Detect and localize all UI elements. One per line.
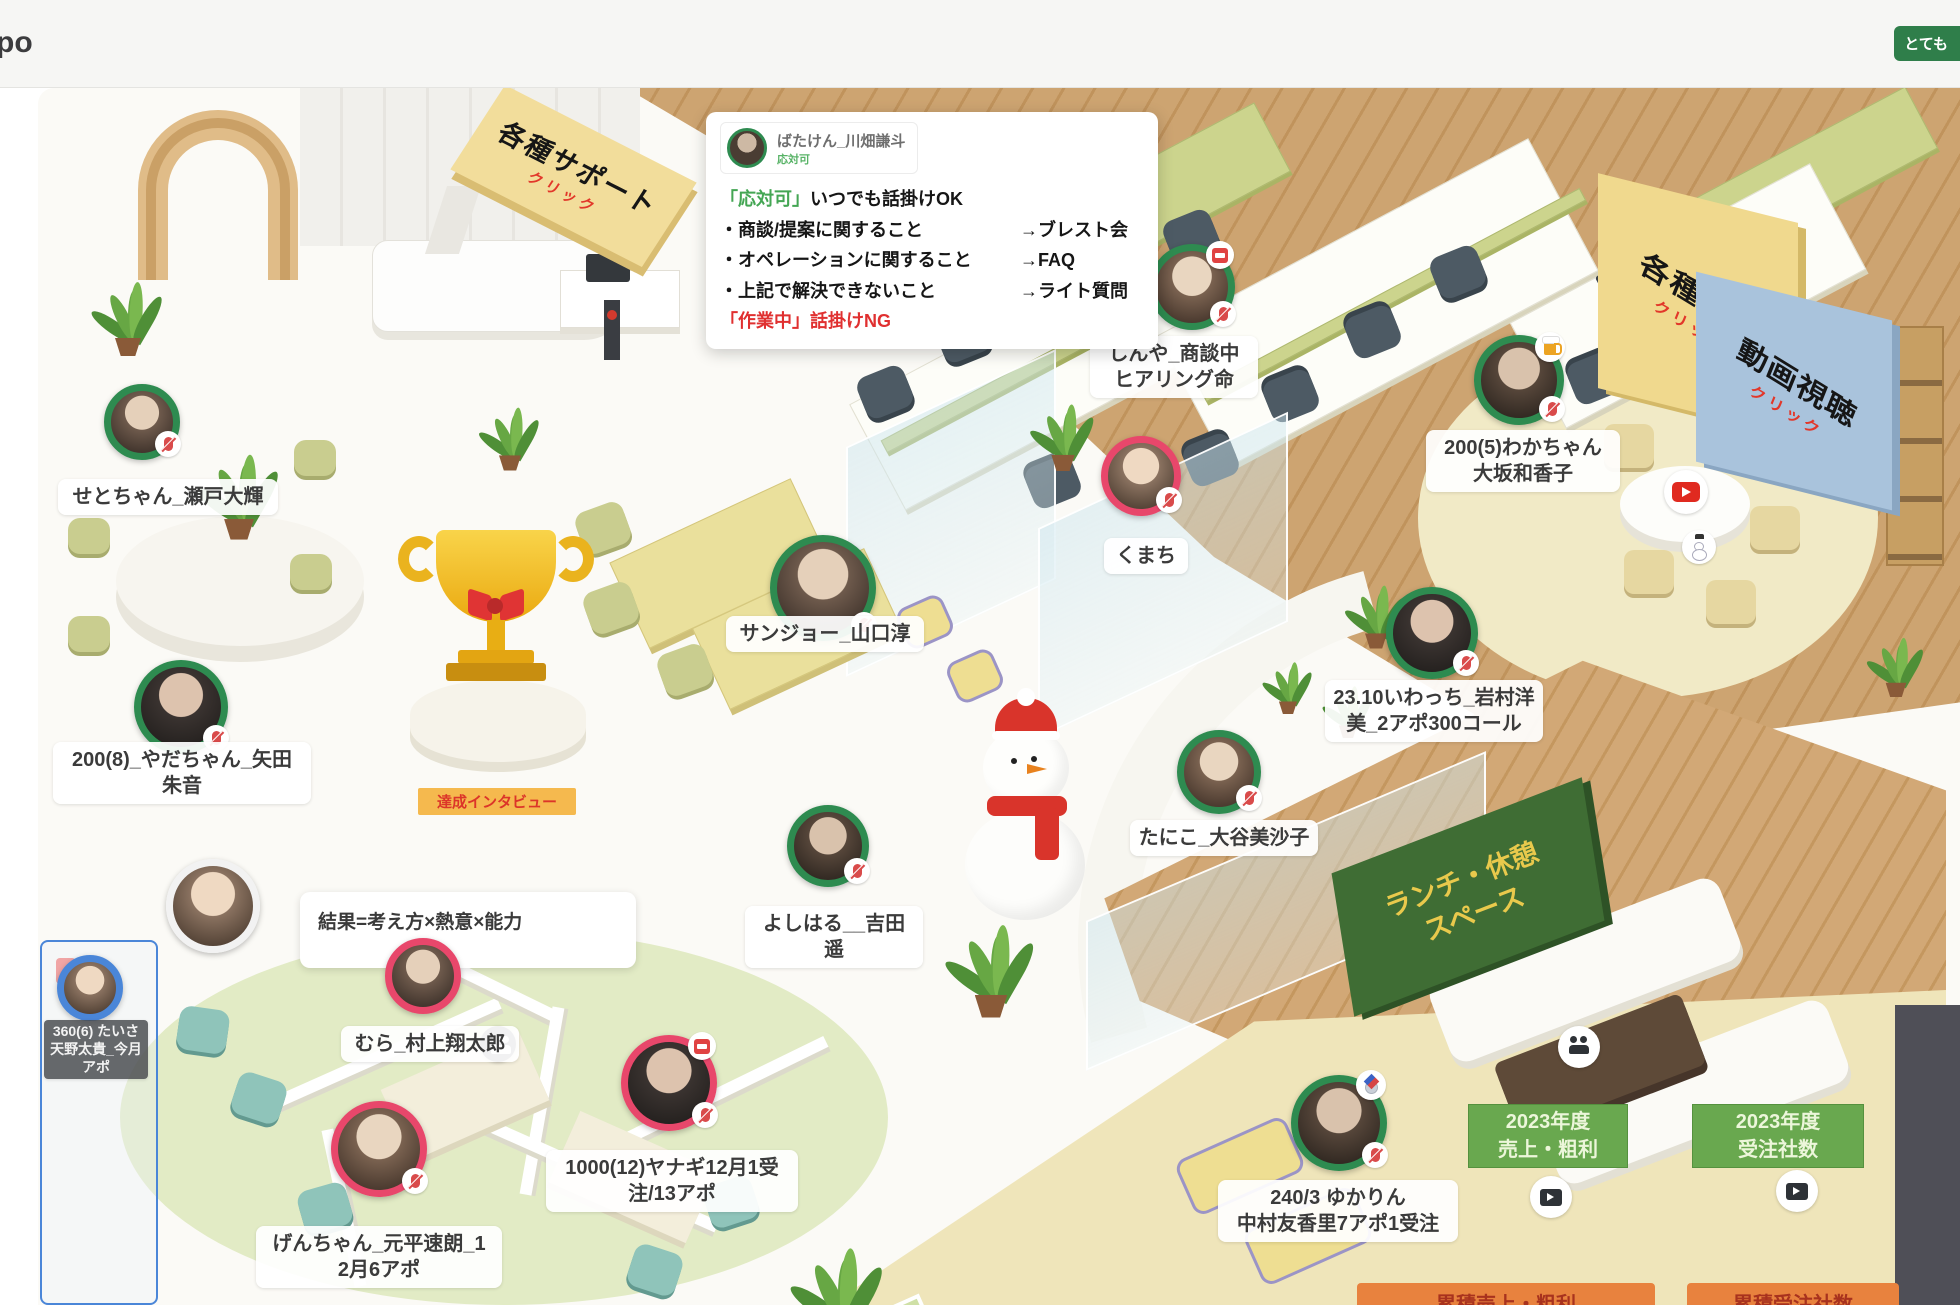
board-orders-2023[interactable]: 2023年度 受注社数 <box>1692 1104 1864 1168</box>
user-mura-label: むら_村上翔太郎 <box>341 1026 519 1062</box>
tooltip-item: ・商談/提案に関すること→ブレスト会 <box>720 215 1144 246</box>
user-setochan-avatar[interactable] <box>104 384 180 460</box>
user-yadachan-avatar[interactable] <box>134 660 228 754</box>
board-cum-sales[interactable]: 累積売上・粗利 <box>1357 1283 1655 1305</box>
top-bar: po とても <box>0 0 1960 88</box>
lunch-sign-label: ランチ・休憩 スペース <box>1379 834 1556 960</box>
top-bar-left-text: po <box>0 26 33 60</box>
status-badge[interactable]: とても <box>1894 26 1960 61</box>
user-yukarin-label: 240/3 ゆかりん 中村友香里7アポ1受注 <box>1218 1180 1458 1242</box>
mic-off-icon <box>1362 1142 1388 1168</box>
user-kumachi-label: くまち <box>1104 538 1188 574</box>
user-sanjo-label: サンジョー_山口淳 <box>726 616 924 652</box>
mic-off-icon <box>1156 487 1182 513</box>
medal-icon <box>1356 1070 1386 1100</box>
user-yoshiharu-label: よしはる__吉田遥 <box>745 906 923 968</box>
bookshelf <box>1886 326 1944 566</box>
user-yukarin-avatar[interactable] <box>1291 1075 1387 1171</box>
tooltip-header: ばたけん_川畑謙斗 応対可 <box>720 122 918 174</box>
tooltip-footer-ng: 「作業中」話掛けNG <box>720 306 1144 337</box>
board-cum-orders[interactable]: 累積受注社数 <box>1687 1283 1899 1305</box>
user-kumachi-avatar[interactable] <box>1101 436 1181 516</box>
user-status-tooltip: ばたけん_川畑謙斗 応対可 「応対可」いつでも話掛けOK ・商談/提案に関するこ… <box>706 112 1158 349</box>
snowman-icon <box>1682 530 1716 564</box>
user-genchan-avatar[interactable] <box>331 1101 427 1197</box>
mic-off-icon <box>692 1102 718 1128</box>
user-yadachan-label: 200(8)_やだちゃん_矢田 朱音 <box>53 742 311 804</box>
video-link-icon[interactable] <box>1530 1176 1572 1218</box>
mic-off-icon <box>155 431 181 457</box>
tooltip-avatar <box>727 128 767 168</box>
user-yanagi-avatar[interactable] <box>621 1035 717 1131</box>
tooltip-line-availability: 「応対可」いつでも話掛けOK <box>720 184 1144 215</box>
mic-off-icon <box>1539 396 1565 422</box>
group-meeting-icon[interactable] <box>1558 1026 1600 1068</box>
interview-tag[interactable]: 達成インタビュー <box>418 788 576 815</box>
user-yoshiharu-avatar[interactable] <box>787 805 869 887</box>
calendar-icon <box>1206 241 1234 269</box>
mic-off-icon <box>402 1168 428 1194</box>
user-wakachan-label: 200(5)わかちゃん 大坂和香子 <box>1426 430 1620 492</box>
mic-off-icon <box>1236 785 1262 811</box>
board-sales-2023[interactable]: 2023年度 売上・粗利 <box>1468 1104 1628 1168</box>
user-reception-person-avatar[interactable] <box>166 859 260 953</box>
beer-icon <box>1535 332 1565 362</box>
user-taniko-avatar[interactable] <box>1177 730 1261 814</box>
mic-off-icon <box>844 858 870 884</box>
user-taniko-label: たにこ_大谷美沙子 <box>1130 820 1318 856</box>
user-taisa-avatar[interactable] <box>57 955 123 1021</box>
tooltip-item: ・上記で解決できないこと→ライト質問 <box>720 276 1144 307</box>
user-iwacchi-avatar[interactable] <box>1386 587 1478 679</box>
video-link-icon[interactable] <box>1776 1170 1818 1212</box>
youtube-icon[interactable] <box>1664 470 1708 514</box>
quote-bubble: 結果=考え方×熱意×能力 <box>300 892 636 968</box>
user-setochan-label: せとちゃん_瀬戸大輝 <box>58 479 278 515</box>
user-taisa-label: 360(6) たいさ 天野太貴_今月 アポ <box>44 1020 148 1079</box>
mic-off-icon <box>1453 650 1479 676</box>
tooltip-user-status: 応対可 <box>777 151 905 167</box>
mic-off-icon <box>1210 301 1236 327</box>
user-mura-avatar[interactable] <box>385 938 461 1014</box>
tooltip-user-name: ばたけん_川畑謙斗 <box>777 130 905 151</box>
tooltip-item: ・オペレーションに関すること→FAQ <box>720 245 1144 276</box>
user-iwacchi-label: 23.10いわっち_岩村洋 美_2アポ300コール <box>1325 680 1543 742</box>
user-yanagi-label: 1000(12)ヤナギ12月1受 注/13アポ <box>546 1150 798 1212</box>
user-wakachan-avatar[interactable] <box>1474 335 1564 425</box>
user-genchan-label: げんちゃん_元平速朗_1 2月6アポ <box>256 1226 502 1288</box>
calendar-icon <box>688 1032 716 1060</box>
user-shinya-avatar[interactable] <box>1149 244 1235 330</box>
